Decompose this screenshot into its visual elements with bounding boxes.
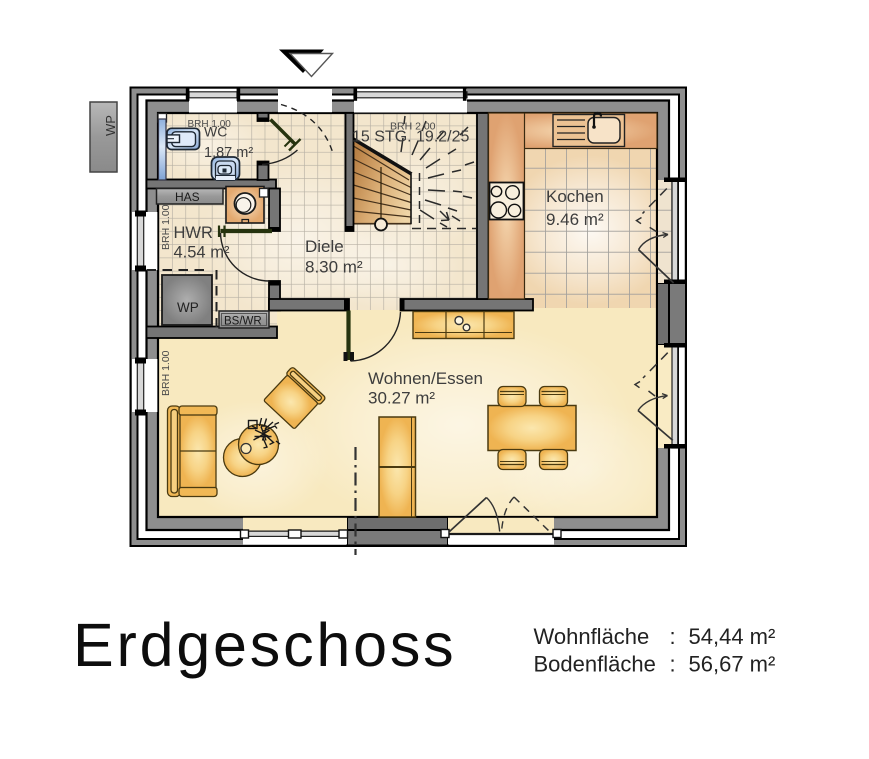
- svg-text:1.87 m²: 1.87 m²: [204, 145, 253, 161]
- svg-text:Diele: Diele: [305, 237, 344, 256]
- svg-text:Wohnfläche: Wohnfläche: [534, 624, 650, 649]
- svg-text:BRH 1.00: BRH 1.00: [160, 204, 172, 250]
- svg-text:Wohnen/Essen: Wohnen/Essen: [368, 369, 483, 388]
- svg-text:4.54 m²: 4.54 m²: [174, 244, 230, 262]
- svg-text:Kochen: Kochen: [546, 187, 604, 206]
- svg-text:HAS: HAS: [175, 190, 200, 204]
- svg-text:Erdgeschoss: Erdgeschoss: [73, 611, 456, 679]
- svg-text:WP: WP: [177, 300, 199, 315]
- svg-text:WC: WC: [204, 124, 227, 140]
- svg-text:30.27 m²: 30.27 m²: [368, 389, 435, 408]
- svg-text:WP: WP: [103, 115, 118, 136]
- svg-text:56,67 m²: 56,67 m²: [689, 652, 776, 677]
- svg-text:15 STG. 19.2/25: 15 STG. 19.2/25: [352, 129, 470, 146]
- svg-text:BRH 1.00: BRH 1.00: [160, 350, 172, 396]
- svg-text::: :: [670, 652, 676, 677]
- svg-text::: :: [670, 624, 676, 649]
- svg-text:BS/WR: BS/WR: [224, 316, 262, 328]
- svg-text:8.30 m²: 8.30 m²: [305, 258, 363, 277]
- svg-text:9.46 m²: 9.46 m²: [546, 210, 604, 229]
- svg-text:HWR: HWR: [174, 224, 213, 242]
- svg-text:Bodenfläche: Bodenfläche: [534, 652, 656, 677]
- svg-text:54,44 m²: 54,44 m²: [689, 624, 776, 649]
